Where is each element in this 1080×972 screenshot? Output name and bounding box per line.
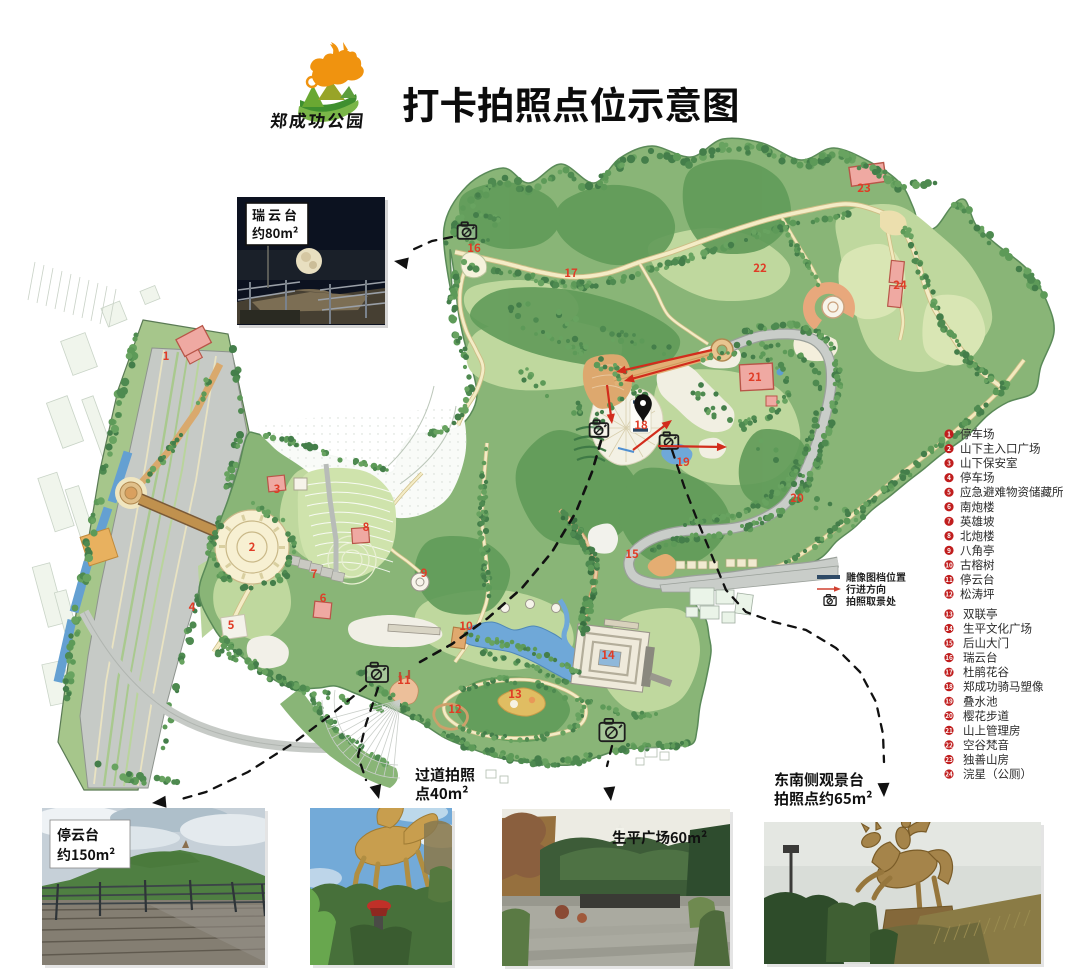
svg-text:3: 3 [947, 459, 951, 468]
svg-text:松涛坪: 松涛坪 [960, 586, 995, 602]
svg-text:过道拍照: 过道拍照 [415, 764, 475, 785]
svg-text:约80m²: 约80m² [252, 223, 298, 242]
svg-text:山下保安室: 山下保安室 [960, 455, 1018, 471]
svg-text:停车场: 停车场 [960, 426, 995, 442]
svg-text:1: 1 [947, 429, 951, 438]
svg-text:15: 15 [945, 639, 953, 648]
svg-text:10: 10 [945, 560, 953, 569]
svg-text:21: 21 [748, 369, 762, 385]
svg-text:生平文化广场: 生平文化广场 [963, 621, 1032, 637]
svg-text:3: 3 [274, 481, 281, 497]
svg-text:12: 12 [448, 701, 462, 717]
svg-text:7: 7 [947, 517, 951, 526]
svg-text:8: 8 [363, 519, 370, 535]
svg-text:8: 8 [947, 531, 951, 540]
svg-text:打卡拍照点位示意图: 打卡拍照点位示意图 [402, 75, 740, 130]
svg-text:20: 20 [945, 711, 953, 720]
svg-text:5: 5 [947, 488, 951, 497]
svg-text:古榕树: 古榕树 [960, 557, 995, 573]
svg-text:13: 13 [945, 609, 953, 618]
svg-text:拍照点约65m²: 拍照点约65m² [774, 788, 873, 809]
svg-text:12: 12 [945, 589, 953, 598]
svg-text:东南侧观景台: 东南侧观景台 [774, 769, 864, 790]
svg-text:23: 23 [945, 755, 953, 764]
svg-text:瑞云台: 瑞云台 [963, 650, 998, 666]
svg-text:浣星（公厕）: 浣星（公厕） [963, 766, 1032, 782]
svg-text:郑成功公园: 郑成功公园 [269, 107, 367, 132]
svg-text:9: 9 [947, 546, 951, 555]
svg-text:9: 9 [421, 565, 428, 581]
svg-text:10: 10 [459, 618, 473, 634]
svg-text:6: 6 [320, 590, 327, 606]
svg-text:生平广场60m²: 生平广场60m² [612, 827, 707, 848]
svg-text:22: 22 [945, 740, 953, 749]
svg-text:14: 14 [601, 647, 615, 663]
svg-text:4: 4 [189, 599, 196, 615]
svg-text:16: 16 [945, 653, 953, 662]
svg-text:22: 22 [753, 260, 767, 276]
svg-text:15: 15 [625, 546, 639, 562]
svg-text:约150m²: 约150m² [57, 845, 115, 865]
svg-text:18: 18 [945, 682, 953, 691]
svg-text:24: 24 [945, 769, 953, 778]
svg-text:7: 7 [311, 566, 318, 582]
svg-text:20: 20 [790, 490, 804, 506]
svg-text:23: 23 [857, 180, 871, 196]
svg-text:点40m²: 点40m² [415, 783, 469, 804]
svg-text:空谷梵音: 空谷梵音 [963, 737, 1009, 753]
svg-text:11: 11 [945, 575, 953, 584]
svg-text:18: 18 [634, 417, 648, 433]
svg-text:17: 17 [945, 668, 953, 677]
svg-text:19: 19 [945, 697, 953, 706]
svg-text:2: 2 [249, 539, 256, 555]
svg-text:5: 5 [228, 617, 235, 633]
svg-text:21: 21 [945, 726, 953, 735]
svg-text:2: 2 [947, 444, 951, 453]
svg-text:17: 17 [564, 265, 578, 281]
svg-text:应急避难物资储藏所: 应急避难物资储藏所 [960, 484, 1064, 500]
svg-text:1: 1 [163, 348, 170, 364]
svg-text:停云台: 停云台 [57, 825, 99, 845]
svg-text:4: 4 [947, 473, 951, 482]
svg-text:郑成功骑马塑像: 郑成功骑马塑像 [963, 679, 1044, 695]
svg-text:14: 14 [945, 624, 953, 633]
svg-text:英雄坡: 英雄坡 [960, 513, 995, 529]
svg-text:13: 13 [508, 686, 522, 702]
svg-text:6: 6 [947, 502, 951, 511]
svg-text:瑞云台: 瑞云台 [252, 205, 300, 224]
svg-text:16: 16 [467, 240, 481, 256]
svg-text:拍照取景处: 拍照取景处 [846, 593, 896, 608]
svg-text:11: 11 [397, 672, 411, 688]
svg-text:樱花步道: 樱花步道 [963, 708, 1009, 724]
svg-text:24: 24 [893, 277, 907, 293]
